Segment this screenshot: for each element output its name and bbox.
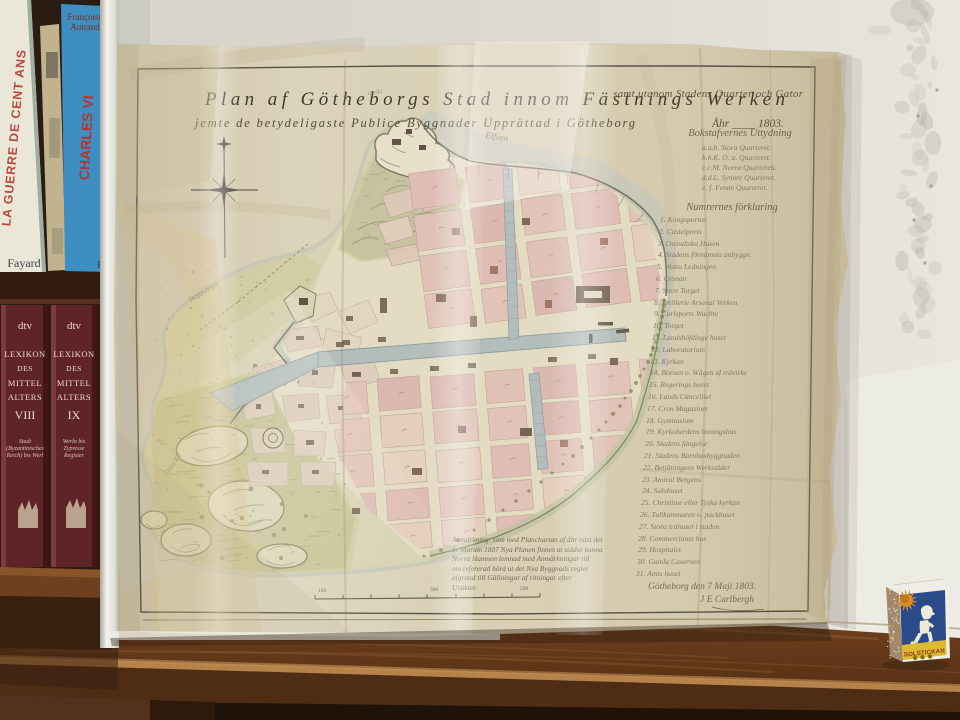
svg-text:IX: IX [68, 408, 81, 422]
svg-text:dtv: dtv [18, 320, 33, 332]
svg-text:MITTEL: MITTEL [57, 378, 91, 388]
svg-text:DES: DES [66, 364, 82, 373]
svg-text:ALTERS: ALTERS [8, 392, 42, 402]
svg-text:MITTEL: MITTEL [8, 378, 42, 388]
svg-text:DES: DES [17, 364, 33, 373]
svg-text:Register: Register [63, 453, 85, 459]
svg-text:Autrand: Autrand [70, 22, 100, 32]
svg-text:ALTERS: ALTERS [57, 392, 91, 402]
svg-text:Zypresse: Zypresse [63, 446, 84, 452]
svg-text:Stadt: Stadt [19, 439, 32, 445]
svg-text:Françoise: Françoise [68, 12, 103, 22]
svg-text:dtv: dtv [67, 320, 82, 332]
svg-text:Fayard: Fayard [7, 256, 40, 270]
svg-text:Reich) bis Werl: Reich) bis Werl [6, 452, 44, 459]
svg-text:Werla bis: Werla bis [63, 439, 86, 445]
svg-text:VIII: VIII [15, 408, 36, 422]
svg-text:(Byzantinisches: (Byzantinisches [6, 445, 44, 452]
svg-text:LEXIKON: LEXIKON [4, 349, 45, 359]
svg-text:LEXIKON: LEXIKON [53, 349, 94, 359]
